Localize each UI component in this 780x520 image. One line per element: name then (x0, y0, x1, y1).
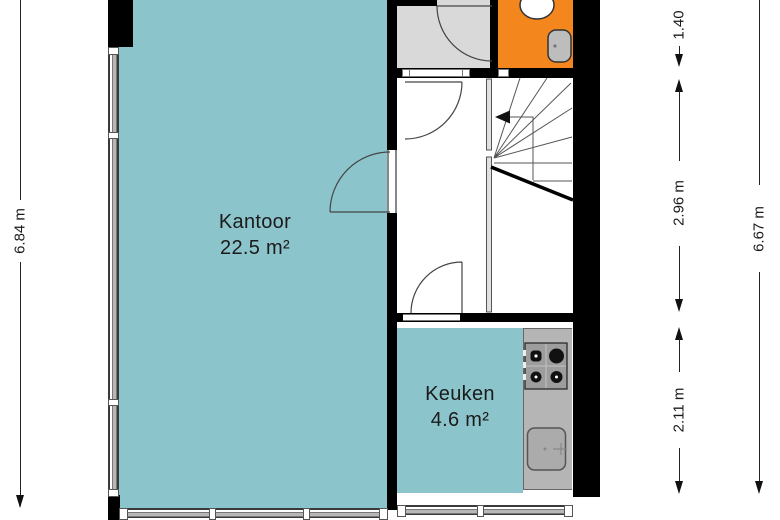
dim-line (759, 272, 760, 483)
label-keuken: Keuken 4.6 m² (397, 381, 523, 433)
dim-line (679, 90, 680, 161)
room-name: Kantoor (155, 209, 355, 235)
toilet-icon (520, 0, 554, 19)
floor-plan: Kantoor 22.5 m² Keuken 4.6 m² 6.84 m 1.4… (0, 0, 780, 520)
stair-direction-arrow (495, 111, 510, 124)
dim-arrow-down (675, 54, 683, 67)
dim-line (679, 338, 680, 372)
hand-basin-icon (548, 30, 571, 62)
dim-line (679, 448, 680, 483)
dim-line (20, 0, 21, 200)
label-kantoor: Kantoor 22.5 m² (155, 209, 355, 261)
dim-arrow-down (675, 299, 683, 312)
room-area: 22.5 m² (155, 235, 355, 261)
dim-label-right-total: 6.67 m (751, 206, 768, 252)
dim-label-211: 2.11 m (671, 388, 688, 433)
stove-icon (523, 343, 567, 389)
dim-arrow-down (675, 481, 683, 494)
dim-label-296: 2.96 m (671, 180, 688, 226)
kitchen-sink-icon (528, 428, 568, 470)
dim-line (759, 0, 760, 185)
door-arc-icon (330, 6, 492, 313)
dim-arrow-down (755, 481, 763, 494)
dim-line (679, 246, 680, 301)
room-area: 4.6 m² (397, 407, 523, 433)
dim-label-140: 1.40 (671, 10, 688, 39)
stair-railing (487, 79, 492, 312)
dim-arrow-down (16, 495, 24, 508)
plan-overlay (0, 0, 780, 520)
room-name: Keuken (397, 381, 523, 407)
dim-label-left-total: 6.84 m (12, 208, 29, 254)
dim-line (20, 262, 21, 506)
stairs-icon (491, 78, 573, 200)
